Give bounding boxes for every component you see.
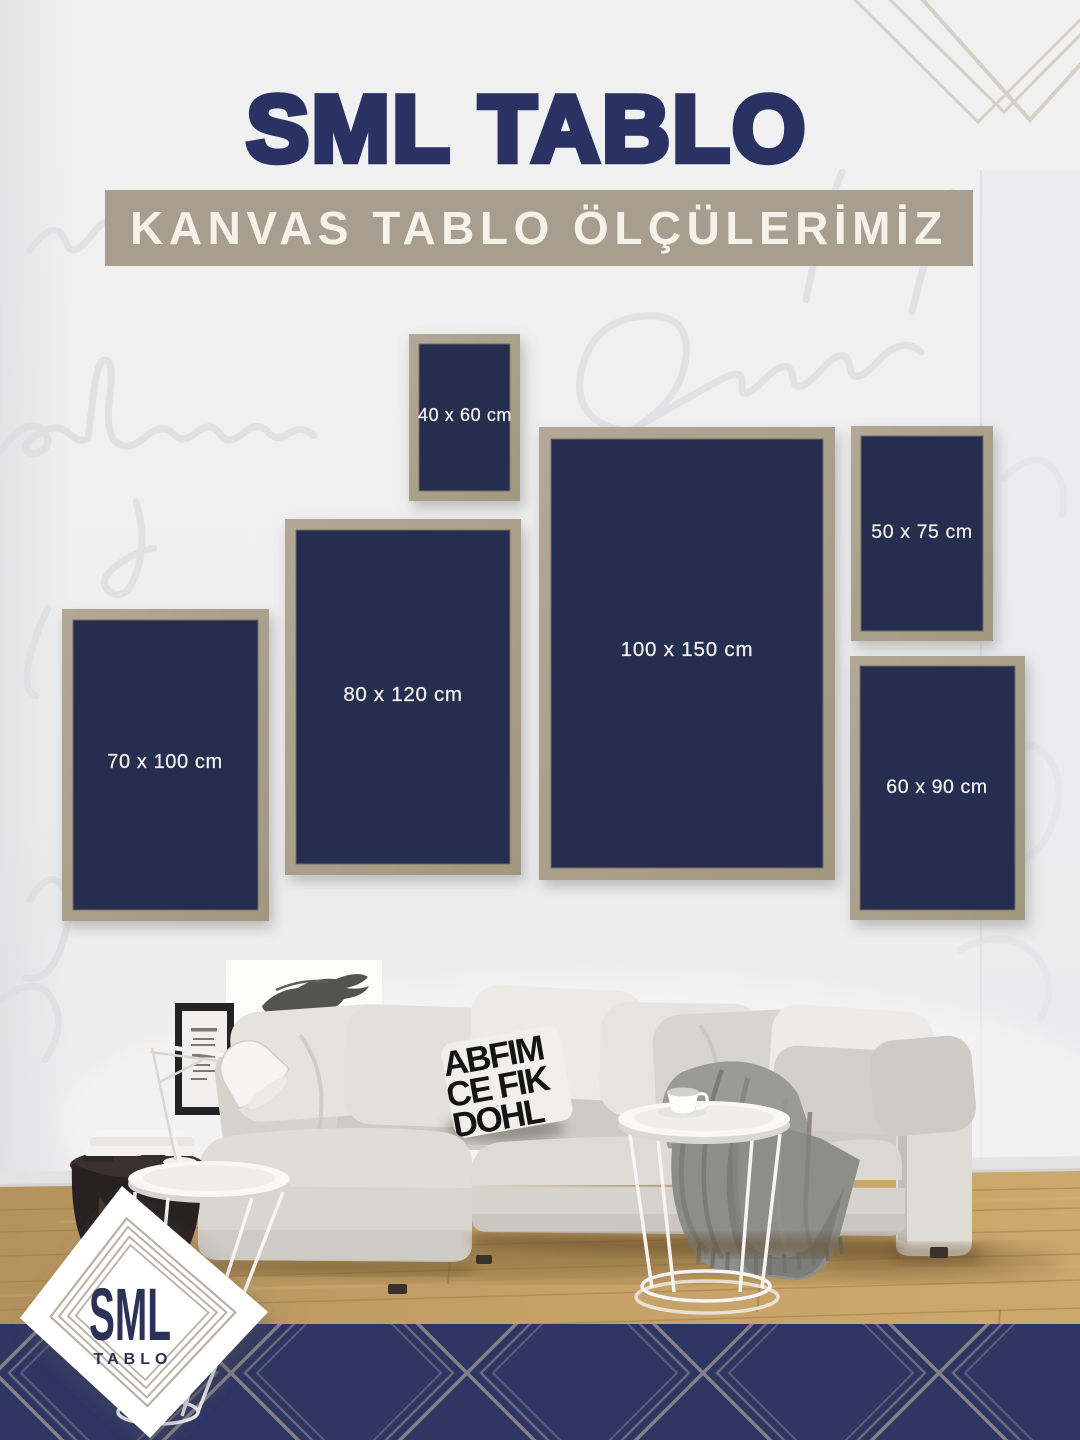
svg-text:TABLO: TABLO [94,1351,173,1368]
svg-text:70 x 100 cm: 70 x 100 cm [107,751,223,773]
svg-text:80 x 120 cm: 80 x 120 cm [343,683,462,706]
svg-text:SML TABLO: SML TABLO [246,76,807,181]
svg-text:50 x 75 cm: 50 x 75 cm [871,521,972,543]
svg-text:60 x 90 cm: 60 x 90 cm [886,776,987,798]
svg-text:SML: SML [89,1273,171,1356]
svg-text:KANVAS TABLO ÖLÇÜLERİMİZ: KANVAS TABLO ÖLÇÜLERİMİZ [130,202,948,254]
svg-text:40 x 60 cm: 40 x 60 cm [418,405,512,425]
svg-text:100 x 150 cm: 100 x 150 cm [621,638,754,661]
